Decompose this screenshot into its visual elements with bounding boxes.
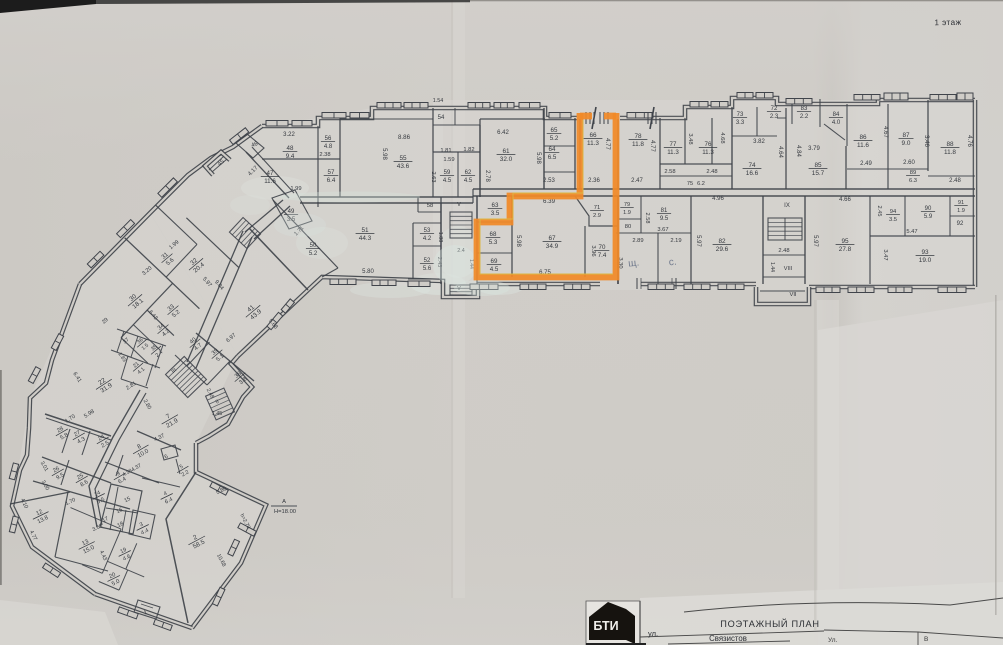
svg-text:2.89: 2.89 bbox=[632, 238, 643, 244]
svg-text:32.0: 32.0 bbox=[500, 156, 513, 163]
svg-text:52: 52 bbox=[424, 258, 431, 264]
svg-text:6.5: 6.5 bbox=[548, 154, 557, 161]
svg-text:IX: IX bbox=[784, 203, 790, 209]
svg-text:83: 83 bbox=[801, 106, 808, 112]
svg-text:2.48: 2.48 bbox=[778, 248, 789, 254]
svg-text:89: 89 bbox=[910, 170, 916, 176]
svg-text:73: 73 bbox=[737, 112, 744, 118]
svg-text:1.88: 1.88 bbox=[437, 232, 443, 243]
svg-text:80: 80 bbox=[625, 224, 631, 230]
svg-text:27.8: 27.8 bbox=[839, 246, 852, 253]
svg-text:93: 93 bbox=[921, 249, 929, 256]
svg-text:47: 47 bbox=[267, 170, 274, 177]
svg-text:5.97: 5.97 bbox=[695, 235, 701, 247]
svg-text:H=18.00: H=18.00 bbox=[274, 509, 296, 515]
svg-text:6.4: 6.4 bbox=[327, 177, 336, 184]
svg-text:88: 88 bbox=[946, 141, 954, 148]
svg-text:72: 72 bbox=[771, 106, 778, 112]
svg-text:70: 70 bbox=[599, 244, 606, 251]
svg-text:5.2: 5.2 bbox=[309, 251, 318, 257]
svg-text:65: 65 bbox=[551, 127, 558, 134]
svg-text:84: 84 bbox=[833, 112, 840, 118]
svg-text:БТИ: БТИ bbox=[593, 619, 618, 633]
svg-text:5.98: 5.98 bbox=[535, 152, 541, 164]
svg-text:71: 71 bbox=[594, 205, 600, 211]
svg-text:4.76: 4.76 bbox=[966, 135, 972, 147]
svg-text:4.68: 4.68 bbox=[719, 132, 725, 143]
svg-text:67: 67 bbox=[548, 235, 556, 242]
svg-text:1.44: 1.44 bbox=[769, 262, 775, 272]
svg-text:3.48: 3.48 bbox=[687, 133, 693, 144]
svg-text:59: 59 bbox=[444, 170, 451, 176]
svg-text:66: 66 bbox=[589, 132, 597, 139]
svg-text:90: 90 bbox=[925, 206, 932, 212]
svg-text:3.22: 3.22 bbox=[283, 132, 295, 138]
svg-text:87: 87 bbox=[902, 132, 910, 139]
svg-text:1.45: 1.45 bbox=[212, 411, 223, 417]
svg-text:81: 81 bbox=[661, 208, 668, 214]
svg-text:2.38: 2.38 bbox=[319, 152, 330, 158]
svg-text:4.64: 4.64 bbox=[777, 146, 783, 158]
svg-text:5.98: 5.98 bbox=[515, 235, 521, 247]
svg-text:1.9: 1.9 bbox=[623, 210, 631, 216]
svg-text:55: 55 bbox=[399, 155, 407, 162]
svg-text:50: 50 bbox=[310, 243, 317, 249]
svg-text:2.63: 2.63 bbox=[430, 172, 436, 183]
svg-text:4.77: 4.77 bbox=[604, 138, 610, 150]
svg-text:1.59: 1.59 bbox=[443, 157, 454, 163]
svg-text:2.19: 2.19 bbox=[670, 238, 681, 244]
svg-text:91: 91 bbox=[958, 200, 964, 206]
svg-text:53: 53 bbox=[424, 228, 431, 234]
svg-text:5.80: 5.80 bbox=[362, 269, 374, 275]
svg-text:82: 82 bbox=[718, 238, 726, 245]
svg-text:А: А bbox=[282, 499, 286, 505]
svg-text:4.2: 4.2 bbox=[423, 236, 432, 242]
svg-text:3.96: 3.96 bbox=[590, 245, 596, 256]
svg-text:58: 58 bbox=[427, 203, 433, 209]
svg-text:1.9: 1.9 bbox=[957, 208, 965, 214]
svg-text:4.8: 4.8 bbox=[324, 144, 333, 150]
svg-text:4.77: 4.77 bbox=[649, 140, 655, 152]
svg-text:6.2: 6.2 bbox=[697, 181, 705, 187]
svg-text:5.2: 5.2 bbox=[550, 135, 559, 142]
svg-text:3.3: 3.3 bbox=[736, 120, 745, 126]
svg-text:4.66: 4.66 bbox=[839, 197, 851, 203]
svg-text:6.42: 6.42 bbox=[497, 130, 509, 136]
svg-text:4.5: 4.5 bbox=[464, 178, 473, 184]
svg-text:2.58: 2.58 bbox=[664, 169, 675, 175]
svg-text:щ.: щ. bbox=[628, 257, 640, 269]
svg-text:5.6: 5.6 bbox=[423, 266, 432, 272]
svg-text:2.60: 2.60 bbox=[903, 160, 915, 166]
svg-text:74: 74 bbox=[748, 162, 756, 169]
svg-text:5.3: 5.3 bbox=[489, 239, 498, 246]
svg-text:VIII: VIII bbox=[784, 266, 793, 272]
svg-text:34.9: 34.9 bbox=[546, 243, 559, 250]
svg-text:VII: VII bbox=[789, 292, 796, 298]
svg-text:11.3: 11.3 bbox=[587, 140, 599, 147]
svg-text:85: 85 bbox=[814, 162, 822, 169]
svg-text:9.0: 9.0 bbox=[902, 140, 911, 147]
svg-text:4.96: 4.96 bbox=[712, 196, 724, 202]
svg-text:1.99: 1.99 bbox=[290, 186, 301, 192]
svg-text:3.5: 3.5 bbox=[889, 217, 897, 223]
svg-text:68: 68 bbox=[490, 231, 497, 238]
svg-text:11.8: 11.8 bbox=[944, 149, 956, 156]
svg-text:5.47: 5.47 bbox=[906, 229, 917, 235]
svg-text:ул.: ул. bbox=[648, 629, 658, 638]
svg-text:2.49: 2.49 bbox=[860, 161, 872, 167]
svg-text:6.3: 6.3 bbox=[909, 178, 917, 184]
svg-text:11.6: 11.6 bbox=[264, 178, 276, 185]
svg-text:69: 69 bbox=[491, 258, 498, 265]
svg-text:1 этаж: 1 этаж bbox=[934, 18, 961, 27]
svg-text:2.3: 2.3 bbox=[770, 114, 779, 120]
svg-text:62: 62 bbox=[465, 170, 472, 176]
svg-text:8.86: 8.86 bbox=[398, 134, 411, 141]
svg-text:11.3: 11.3 bbox=[702, 149, 714, 156]
svg-text:94: 94 bbox=[890, 209, 897, 215]
svg-text:76: 76 bbox=[705, 141, 712, 148]
svg-text:2.47: 2.47 bbox=[631, 178, 643, 184]
svg-text:1.82: 1.82 bbox=[463, 147, 474, 153]
svg-text:64: 64 bbox=[549, 146, 556, 153]
svg-text:9.4: 9.4 bbox=[286, 153, 295, 160]
svg-text:78: 78 bbox=[634, 133, 642, 140]
svg-text:Связистов: Связистов bbox=[709, 634, 747, 643]
svg-text:56: 56 bbox=[325, 136, 332, 142]
svg-text:с.: с. bbox=[668, 257, 677, 269]
svg-text:В: В bbox=[924, 636, 928, 643]
svg-text:V: V bbox=[457, 202, 461, 208]
svg-text:2.53: 2.53 bbox=[543, 178, 555, 184]
svg-text:43.6: 43.6 bbox=[397, 163, 410, 170]
svg-text:44.3: 44.3 bbox=[359, 235, 372, 242]
svg-text:86: 86 bbox=[859, 134, 867, 141]
svg-text:15.7: 15.7 bbox=[812, 170, 825, 177]
svg-text:4.0: 4.0 bbox=[832, 120, 841, 126]
svg-text:2.78: 2.78 bbox=[484, 170, 490, 182]
svg-text:2.36: 2.36 bbox=[588, 178, 600, 184]
svg-text:2.48: 2.48 bbox=[706, 169, 717, 175]
svg-text:2.45: 2.45 bbox=[876, 206, 882, 217]
svg-text:51: 51 bbox=[361, 227, 369, 234]
svg-text:2.48: 2.48 bbox=[949, 178, 961, 184]
svg-text:5.9: 5.9 bbox=[924, 214, 933, 220]
svg-text:4.5: 4.5 bbox=[490, 266, 499, 273]
svg-text:ПОЭТАЖНЫЙ ПЛАН: ПОЭТАЖНЫЙ ПЛАН bbox=[720, 618, 819, 629]
svg-text:54: 54 bbox=[438, 115, 445, 121]
svg-text:2.2: 2.2 bbox=[800, 114, 809, 120]
svg-text:3.47: 3.47 bbox=[882, 249, 888, 260]
svg-text:77: 77 bbox=[670, 141, 677, 148]
svg-text:61: 61 bbox=[502, 148, 510, 155]
svg-text:48: 48 bbox=[287, 145, 294, 152]
svg-text:2.9: 2.9 bbox=[593, 213, 601, 219]
svg-text:63: 63 bbox=[492, 202, 499, 209]
svg-text:4.5: 4.5 bbox=[443, 178, 452, 184]
svg-text:11.6: 11.6 bbox=[857, 142, 869, 149]
svg-text:5.98: 5.98 bbox=[381, 148, 387, 160]
svg-text:16.6: 16.6 bbox=[746, 170, 759, 177]
svg-text:3.46: 3.46 bbox=[923, 135, 929, 147]
svg-text:9.5: 9.5 bbox=[660, 216, 669, 222]
svg-text:1.54: 1.54 bbox=[433, 98, 444, 104]
svg-text:75: 75 bbox=[687, 181, 693, 187]
svg-text:5.97: 5.97 bbox=[812, 235, 818, 247]
svg-text:1.81: 1.81 bbox=[440, 148, 451, 154]
svg-text:3.79: 3.79 bbox=[808, 146, 820, 152]
svg-text:2.58: 2.58 bbox=[644, 213, 650, 224]
svg-text:79: 79 bbox=[624, 202, 630, 208]
svg-text:11.3: 11.3 bbox=[667, 149, 679, 156]
svg-text:19.0: 19.0 bbox=[919, 257, 932, 264]
svg-text:92: 92 bbox=[957, 221, 964, 227]
svg-text:4.84: 4.84 bbox=[795, 145, 801, 157]
svg-text:95: 95 bbox=[841, 238, 849, 245]
svg-text:4.67: 4.67 bbox=[882, 126, 888, 138]
svg-text:11.8: 11.8 bbox=[632, 141, 644, 148]
svg-text:3.82: 3.82 bbox=[753, 139, 765, 145]
svg-text:3.5: 3.5 bbox=[491, 210, 500, 217]
svg-text:Ул.: Ул. bbox=[828, 637, 837, 644]
svg-text:7.4: 7.4 bbox=[598, 252, 607, 259]
svg-text:29.6: 29.6 bbox=[716, 246, 729, 253]
svg-text:3.67: 3.67 bbox=[657, 227, 668, 233]
svg-text:57: 57 bbox=[328, 169, 335, 176]
